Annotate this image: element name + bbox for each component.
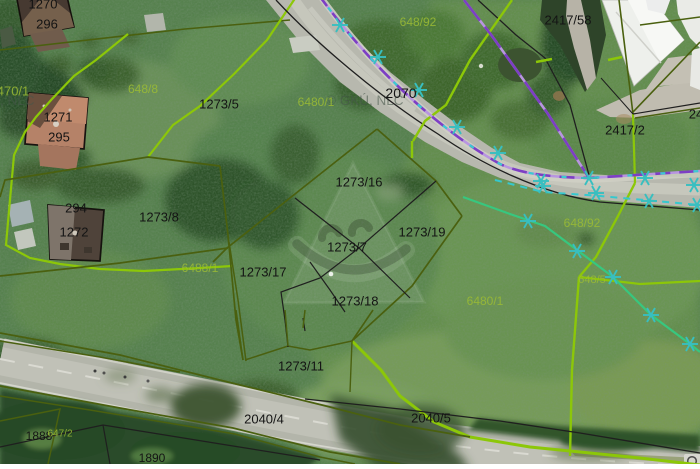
svg-text:6488/1: 6488/1 bbox=[182, 261, 219, 275]
svg-text:294: 294 bbox=[65, 201, 87, 216]
svg-text:1273/7: 1273/7 bbox=[327, 240, 367, 255]
svg-text:1270: 1270 bbox=[29, 0, 58, 12]
svg-text:1273/5: 1273/5 bbox=[199, 97, 239, 112]
svg-text:1273/17: 1273/17 bbox=[240, 265, 287, 280]
svg-text:1273/18: 1273/18 bbox=[332, 294, 379, 309]
svg-text:24: 24 bbox=[689, 107, 700, 122]
svg-text:2040/5: 2040/5 bbox=[411, 411, 451, 426]
svg-text:648/92: 648/92 bbox=[400, 15, 437, 29]
svg-text:6480/1: 6480/1 bbox=[467, 294, 504, 308]
svg-text:1271: 1271 bbox=[44, 110, 73, 125]
svg-text:6480/1: 6480/1 bbox=[298, 95, 335, 109]
svg-text:648/92: 648/92 bbox=[564, 216, 601, 230]
svg-text:470/1: 470/1 bbox=[0, 84, 29, 99]
svg-text:647/2: 647/2 bbox=[47, 429, 72, 440]
svg-text:648/5: 648/5 bbox=[578, 274, 606, 286]
svg-text:1273/19: 1273/19 bbox=[399, 225, 446, 240]
svg-text:1272: 1272 bbox=[60, 225, 89, 240]
svg-text:1273/16: 1273/16 bbox=[336, 175, 383, 190]
svg-text:1273/11: 1273/11 bbox=[278, 359, 324, 374]
svg-text:2417/58: 2417/58 bbox=[545, 13, 592, 28]
svg-text:648/8: 648/8 bbox=[128, 82, 158, 96]
svg-text:2417/2: 2417/2 bbox=[605, 123, 645, 138]
svg-text:296: 296 bbox=[36, 17, 58, 32]
svg-text:295: 295 bbox=[48, 130, 70, 145]
svg-text:1273/8: 1273/8 bbox=[139, 210, 179, 225]
svg-text:2040/4: 2040/4 bbox=[244, 412, 284, 427]
svg-text:2070: 2070 bbox=[385, 85, 416, 101]
svg-text:1890: 1890 bbox=[139, 451, 166, 464]
